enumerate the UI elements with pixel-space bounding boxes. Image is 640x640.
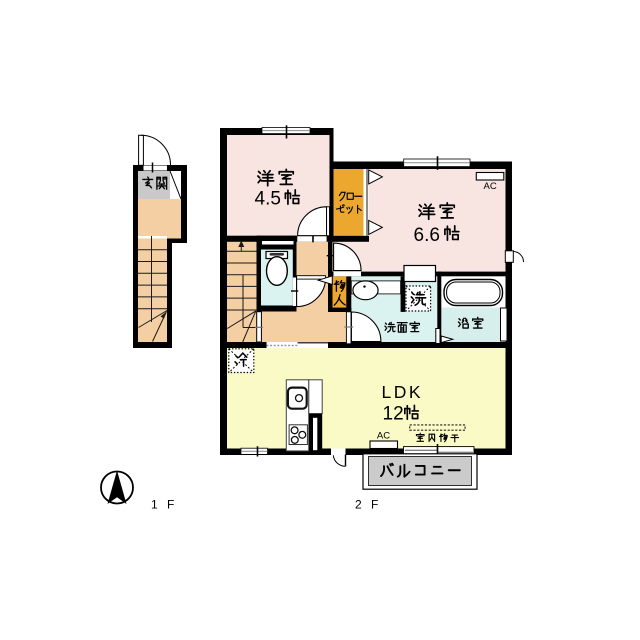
svg-text:LDK: LDK (382, 382, 424, 402)
svg-text:2 F: 2 F (355, 498, 381, 512)
svg-text:6.6: 6.6 (414, 225, 440, 246)
svg-text:AC: AC (377, 431, 390, 442)
svg-text:12: 12 (383, 404, 404, 425)
svg-text:AC: AC (484, 181, 497, 192)
svg-text:1 F: 1 F (151, 498, 177, 512)
svg-text:4.5: 4.5 (255, 189, 281, 210)
